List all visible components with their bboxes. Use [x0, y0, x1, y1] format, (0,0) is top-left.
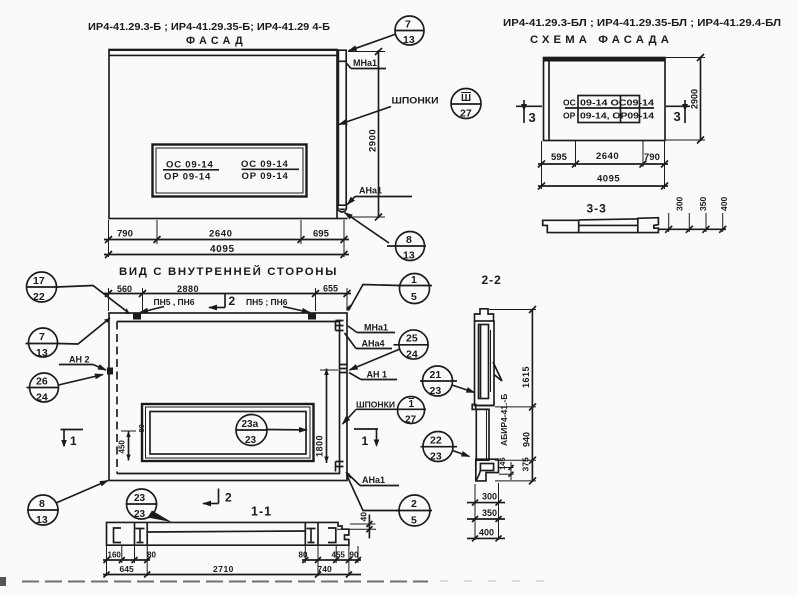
svg-text:3: 3: [529, 110, 536, 125]
svg-text:22: 22: [33, 291, 45, 303]
svg-text:645: 645: [120, 564, 134, 574]
svg-text:160: 160: [108, 551, 122, 560]
svg-text:ВИД С ВНУТРЕННЕЙ СТОРОНЫ: ВИД С ВНУТРЕННЕЙ СТОРОНЫ: [119, 265, 338, 278]
svg-text:17: 17: [33, 275, 45, 287]
svg-text:90: 90: [350, 551, 359, 560]
svg-text:МНа1: МНа1: [353, 58, 377, 68]
svg-text:09-14, ОР09-14: 09-14, ОР09-14: [580, 111, 654, 121]
svg-text:2710: 2710: [213, 564, 234, 574]
svg-text:23: 23: [245, 435, 257, 446]
svg-text:80: 80: [299, 551, 308, 560]
svg-text:ИР4-41.29.3-Б ; ИР4-41.29.35-Б: ИР4-41.29.3-Б ; ИР4-41.29.35-Б; ИР4-41.2…: [88, 21, 330, 33]
svg-text:350: 350: [482, 508, 497, 518]
svg-text:8: 8: [406, 234, 412, 246]
svg-text:5: 5: [411, 291, 417, 303]
svg-text:2640: 2640: [596, 151, 619, 162]
svg-text:ПН5 , ПН6: ПН5 , ПН6: [154, 297, 195, 307]
svg-text:27: 27: [405, 415, 417, 426]
svg-text:145: 145: [498, 457, 507, 470]
svg-text:1800: 1800: [315, 435, 325, 457]
svg-text:13: 13: [403, 250, 415, 262]
svg-text:2900: 2900: [368, 129, 379, 152]
svg-text:2880: 2880: [177, 284, 199, 294]
svg-text:80: 80: [147, 551, 156, 560]
svg-text:940: 940: [522, 432, 532, 447]
svg-text:655: 655: [323, 284, 338, 294]
svg-text:23: 23: [430, 385, 442, 397]
svg-text:25: 25: [406, 333, 418, 345]
svg-text:595: 595: [551, 152, 568, 163]
svg-text:560: 560: [117, 284, 132, 294]
svg-text:13: 13: [36, 514, 48, 526]
svg-text:АНа1: АНа1: [362, 475, 385, 485]
svg-text:790: 790: [117, 229, 133, 240]
svg-text:2640: 2640: [209, 229, 233, 240]
svg-text:23а: 23а: [242, 419, 259, 430]
svg-text:26: 26: [36, 376, 48, 388]
svg-text:АН 1: АН 1: [367, 370, 388, 380]
svg-text:7: 7: [39, 331, 45, 343]
svg-text:ОР 09-14: ОР 09-14: [164, 172, 211, 183]
svg-text:ПН5 ; ПН6: ПН5 ; ПН6: [246, 297, 288, 307]
svg-text:23: 23: [430, 451, 442, 463]
svg-text:1615: 1615: [521, 366, 531, 388]
svg-text:8: 8: [39, 498, 45, 510]
svg-text:80: 80: [137, 424, 146, 432]
svg-text:1-1: 1-1: [251, 505, 272, 519]
svg-text:27: 27: [460, 108, 472, 120]
svg-text:695: 695: [313, 229, 330, 240]
svg-text:ФАСАД: ФАСАД: [186, 35, 247, 47]
svg-text:400: 400: [719, 197, 729, 211]
svg-text:455: 455: [332, 551, 346, 560]
svg-text:2900: 2900: [690, 89, 700, 109]
svg-text:23: 23: [134, 509, 146, 520]
svg-text:40: 40: [359, 512, 369, 522]
svg-text:4095: 4095: [210, 244, 235, 255]
svg-text:09-14 ОС09-14: 09-14 ОС09-14: [580, 98, 654, 108]
svg-text:2-2: 2-2: [482, 273, 502, 287]
svg-text:ШПОНКИ: ШПОНКИ: [392, 96, 439, 106]
svg-text:4095: 4095: [597, 174, 620, 185]
svg-text:2: 2: [229, 294, 236, 308]
svg-text:СХЕМА ФАСАДА: СХЕМА ФАСАДА: [530, 34, 673, 46]
svg-text:300: 300: [482, 492, 497, 502]
svg-text:375: 375: [521, 457, 531, 471]
svg-text:21: 21: [430, 369, 442, 381]
svg-text:300: 300: [675, 197, 685, 211]
svg-text:МНа1: МНа1: [364, 323, 388, 333]
svg-text:2: 2: [411, 498, 417, 510]
svg-text:ОС: ОС: [563, 98, 576, 108]
svg-text:АНа4: АНа4: [362, 339, 385, 349]
svg-text:ОС 09-14: ОС 09-14: [166, 160, 214, 171]
svg-text:Ш: Ш: [461, 93, 471, 104]
svg-text:АН 2: АН 2: [69, 355, 90, 365]
svg-text:450: 450: [118, 440, 127, 454]
svg-text:22: 22: [430, 435, 442, 447]
svg-text:790: 790: [644, 152, 660, 163]
svg-text:ШПОНКИ: ШПОНКИ: [356, 400, 395, 410]
svg-text:350: 350: [698, 197, 708, 211]
svg-text:3: 3: [674, 109, 681, 124]
svg-text:1: 1: [409, 399, 415, 410]
svg-text:24: 24: [36, 392, 48, 404]
svg-text:АНа1: АНа1: [359, 186, 382, 196]
svg-text:2: 2: [225, 491, 232, 505]
svg-text:ОР: ОР: [563, 111, 576, 121]
svg-text:400: 400: [479, 528, 494, 538]
svg-text:13: 13: [403, 34, 415, 46]
svg-text:740: 740: [318, 564, 332, 574]
svg-text:ИР4-41.29.3-БЛ ; ИР4-41.29.35-: ИР4-41.29.3-БЛ ; ИР4-41.29.35-БЛ ; ИР4-4…: [503, 18, 781, 29]
svg-text:24: 24: [406, 349, 418, 361]
svg-text:ОР 09-14: ОР 09-14: [242, 171, 289, 182]
svg-text:13: 13: [36, 347, 48, 359]
svg-text:3-3: 3-3: [587, 202, 607, 216]
svg-text:АБИР4-41.-Б: АБИР4-41.-Б: [499, 394, 509, 446]
svg-text:1: 1: [362, 434, 369, 448]
svg-text:ОС 09-14: ОС 09-14: [241, 159, 289, 170]
svg-text:23: 23: [134, 493, 146, 504]
svg-text:1: 1: [70, 434, 77, 448]
svg-text:7: 7: [405, 19, 411, 31]
svg-text:5: 5: [411, 515, 417, 527]
svg-text:1: 1: [411, 274, 417, 286]
